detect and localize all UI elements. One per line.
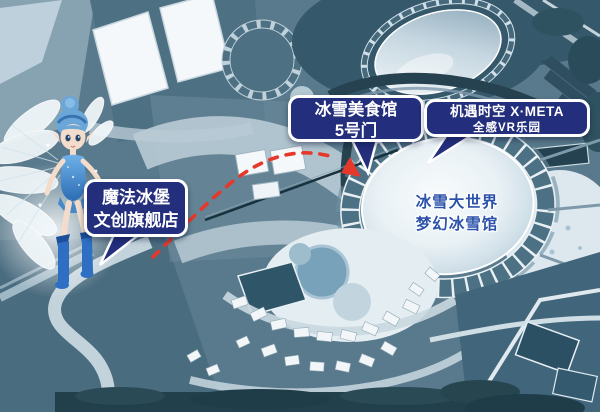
- dome-hall-map-label: 冰雪大世界 梦幻冰雪馆: [388, 192, 526, 237]
- callout-food-hall-line2: 5号门: [293, 121, 419, 142]
- dome-hall-label-line2: 梦幻冰雪馆: [388, 214, 526, 236]
- callout-magic-castle-line1: 魔法冰堡: [89, 187, 183, 210]
- callout-magic-castle-line2: 文创旗舰店: [89, 210, 183, 233]
- callout-food-hall-gate5[interactable]: 冰雪美食馆 5号门: [288, 95, 424, 142]
- callout-xmeta-line1: 机遇时空 X·META: [429, 104, 585, 121]
- callout-xmeta-vr-park[interactable]: 机遇时空 X·META 全感VR乐园: [424, 99, 590, 137]
- callout-magic-castle-store[interactable]: 魔法冰堡 文创旗舰店: [84, 179, 188, 237]
- dome-hall-label-line1: 冰雪大世界: [388, 192, 526, 214]
- park-map-screenshot: 魔法冰堡 文创旗舰店 冰雪美食馆 5号门 机遇时空 X·META 全感VR乐园 …: [0, 0, 600, 412]
- callout-food-hall-line1: 冰雪美食馆: [293, 100, 419, 121]
- callout-xmeta-line2: 全感VR乐园: [429, 121, 585, 135]
